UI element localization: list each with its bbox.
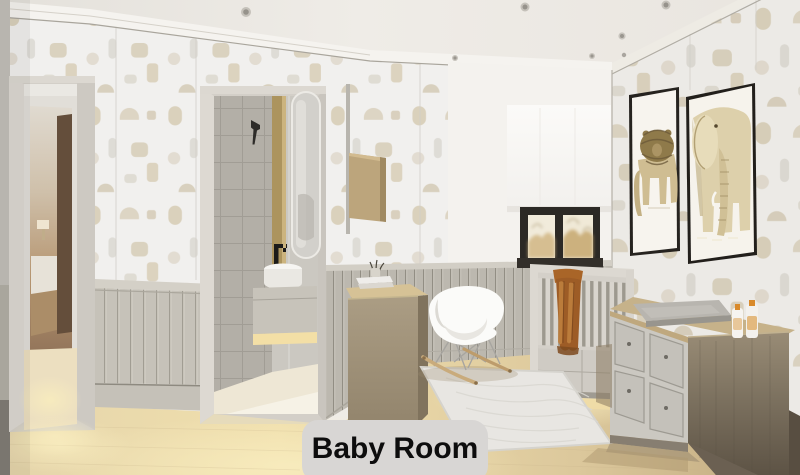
svg-text:Baby Room: Baby Room [312, 432, 479, 465]
